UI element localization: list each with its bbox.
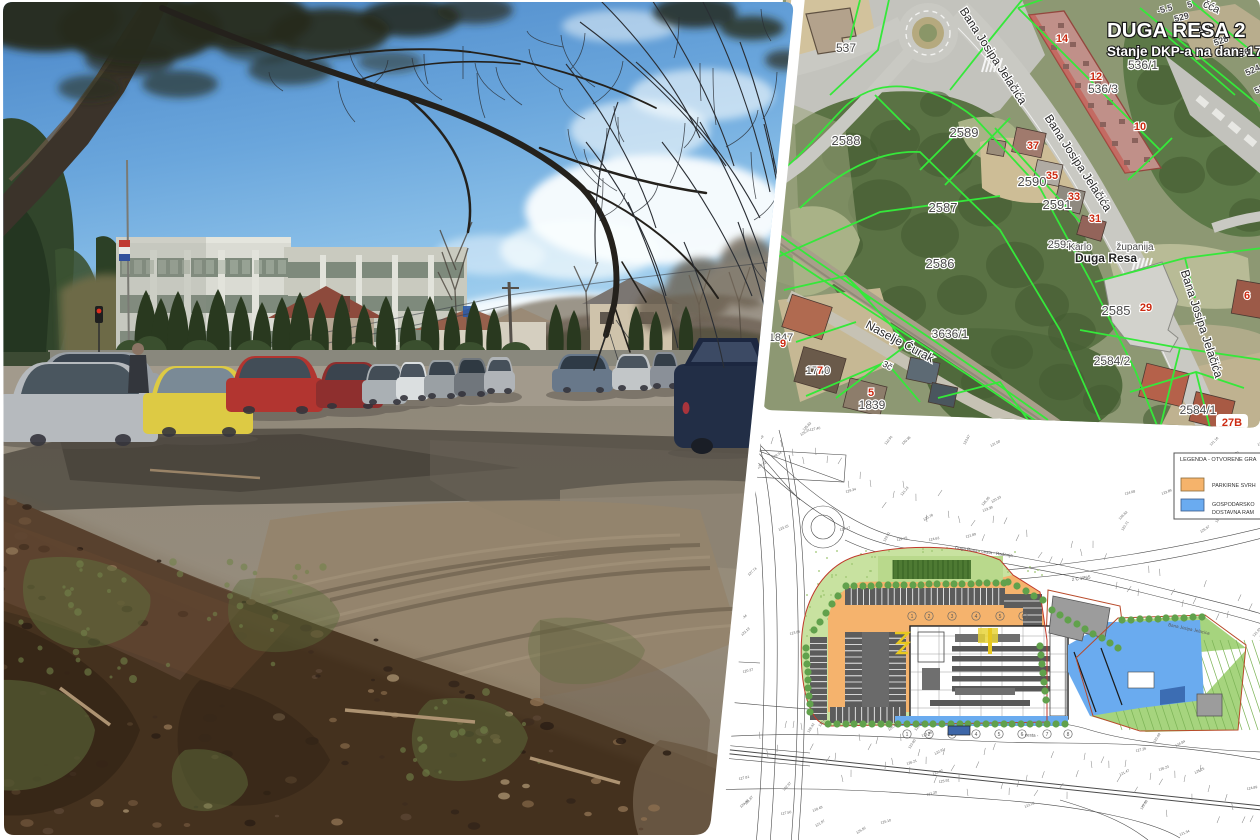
svg-text:9: 9 (780, 338, 786, 350)
svg-text:10: 10 (1134, 121, 1146, 133)
svg-text:4: 4 (975, 732, 978, 738)
svg-text:2585: 2585 (1102, 303, 1131, 318)
svg-text:6: 6 (1022, 614, 1025, 620)
svg-text:LEGENDA - OTVORENE GRA: LEGENDA - OTVORENE GRA (1180, 457, 1257, 463)
svg-text:DUGA RESA 2: DUGA RESA 2 (1107, 19, 1246, 42)
svg-text:5: 5 (998, 732, 1001, 738)
svg-text:537: 537 (836, 41, 856, 55)
svg-text:37: 37 (1027, 140, 1039, 152)
svg-text:1: 1 (911, 614, 914, 620)
svg-text:8: 8 (1067, 732, 1070, 738)
svg-text:GOSPODARSKO: GOSPODARSKO (1212, 502, 1255, 508)
svg-text:14: 14 (1056, 33, 1069, 45)
svg-text:Duga Resa: Duga Resa (1075, 251, 1137, 265)
svg-text:2587: 2587 (929, 200, 958, 215)
svg-text:2586: 2586 (926, 256, 955, 271)
svg-text:3636/1: 3636/1 (932, 327, 969, 341)
svg-text:4: 4 (975, 614, 978, 620)
svg-text:3: 3 (951, 614, 954, 620)
svg-text:35: 35 (1046, 170, 1058, 182)
svg-text:1839: 1839 (859, 398, 886, 412)
svg-text:2590: 2590 (1018, 174, 1047, 189)
svg-text:7: 7 (817, 365, 823, 377)
svg-text:29: 29 (1140, 302, 1152, 314)
svg-text:DOSTAVNA RAM: DOSTAVNA RAM (1212, 510, 1255, 516)
svg-text:536/3: 536/3 (1088, 82, 1118, 96)
svg-text:5: 5 (999, 614, 1002, 620)
svg-text:2589: 2589 (950, 125, 979, 140)
svg-text:7: 7 (1046, 732, 1049, 738)
svg-text:2: 2 (928, 614, 931, 620)
svg-text:2584/1: 2584/1 (1180, 403, 1217, 417)
svg-text:31: 31 (1089, 213, 1101, 225)
svg-text:6: 6 (1244, 290, 1250, 302)
svg-text:12: 12 (1090, 71, 1102, 83)
svg-text:2584/2: 2584/2 (1094, 354, 1131, 368)
svg-text:2588: 2588 (832, 133, 861, 148)
svg-text:5: 5 (868, 387, 874, 399)
svg-text:PARKIRNE SVRH: PARKIRNE SVRH (1212, 483, 1256, 489)
svg-text:536/1: 536/1 (1128, 58, 1158, 72)
svg-text:Stanje DKP-a na dan: 17.: Stanje DKP-a na dan: 17. (1107, 44, 1260, 59)
svg-text:1: 1 (906, 732, 909, 738)
svg-text:33: 33 (1068, 191, 1080, 203)
